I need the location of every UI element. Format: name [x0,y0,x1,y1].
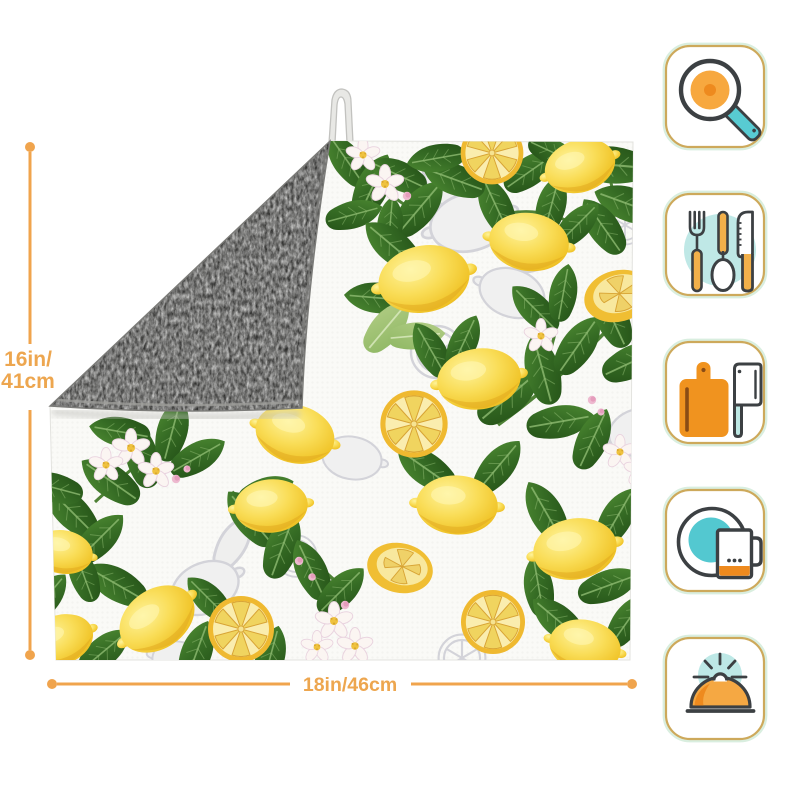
svg-text:41cm: 41cm [1,370,55,393]
svg-text:16in/: 16in/ [4,348,52,371]
svg-text:18in/46cm: 18in/46cm [303,674,397,696]
